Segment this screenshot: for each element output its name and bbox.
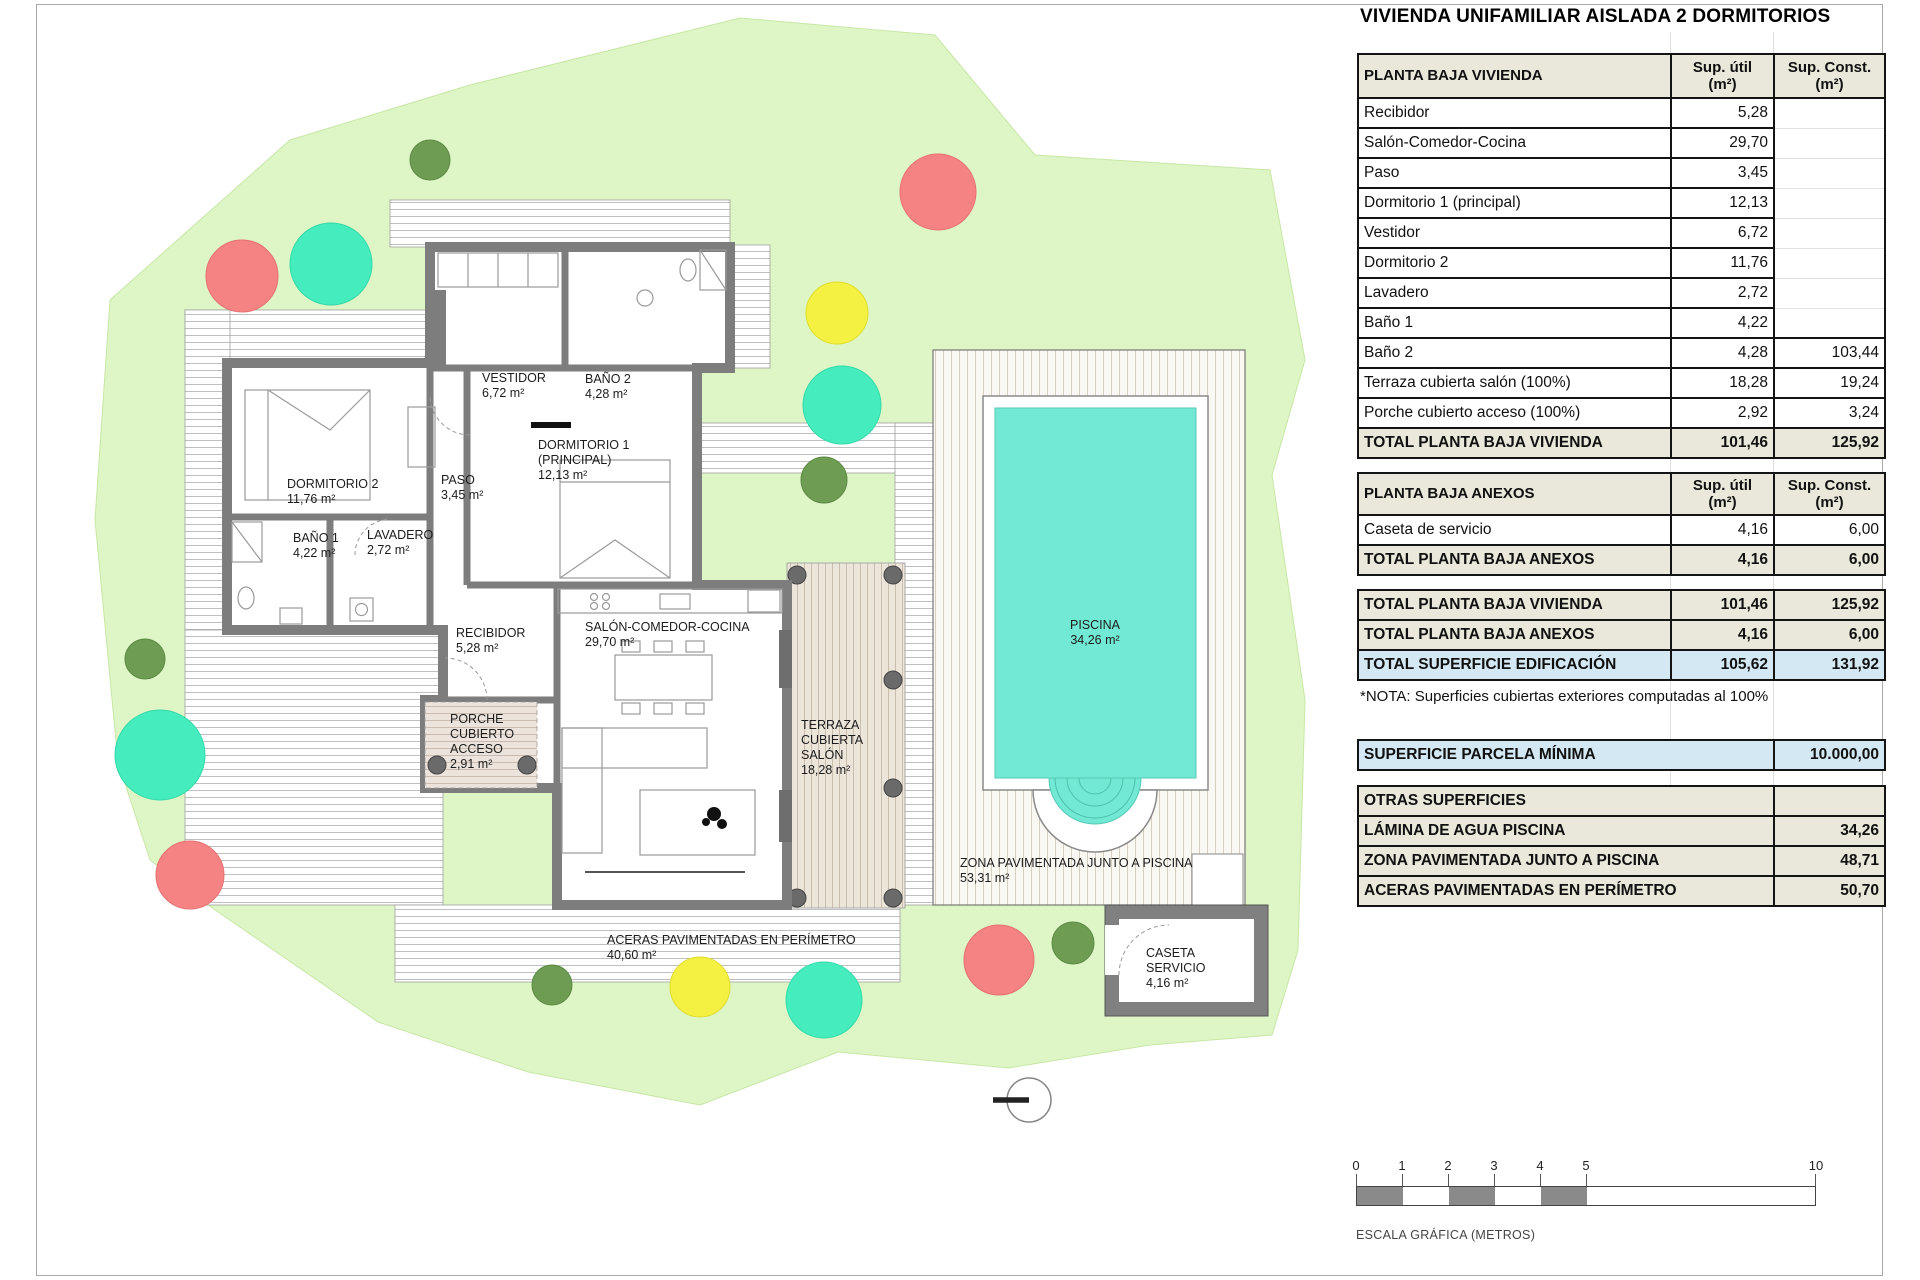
scale-tick-label: 0: [1352, 1158, 1359, 1173]
table-total-row: TOTAL PLANTA BAJA VIVIENDA 101,46 125,92: [1358, 428, 1885, 458]
benchmark-icon: [993, 1078, 1051, 1122]
table-parcela-minima: SUPERFICIE PARCELA MÍNIMA 10.000,00: [1357, 739, 1886, 771]
scale-tick-label: 10: [1809, 1158, 1823, 1173]
table-row: Baño 24,28103,44: [1358, 338, 1885, 368]
room-label-vestidor: VESTIDOR6,72 m²: [482, 371, 546, 401]
col-header-sup-util: Sup. útil(m²): [1671, 54, 1774, 98]
note-text: *NOTA: Superficies cubiertas exteriores …: [1360, 688, 1768, 705]
room-label-terraza: TERRAZACUBIERTA SALÓN18,28 m²: [801, 718, 863, 778]
label-caseta: CASETASERVICIO 4,16 m²: [1146, 946, 1206, 991]
table-row: LÁMINA DE AGUA PISCINA34,26: [1358, 816, 1885, 846]
room-label-paso: PASO3,45 m²: [441, 473, 483, 503]
room-label-dormitorio1: DORMITORIO 1(PRINCIPAL) 12,13 m²: [538, 438, 629, 483]
scale-bar-label: ESCALA GRÁFICA (METROS): [1356, 1228, 1535, 1242]
table-row: Recibidor5,28: [1358, 98, 1885, 128]
scale-tick-label: 2: [1444, 1158, 1451, 1173]
table-row: Porche cubierto acceso (100%)2,923,24: [1358, 398, 1885, 428]
table-row: ZONA PAVIMENTADA JUNTO A PISCINA48,71: [1358, 846, 1885, 876]
label-zona-pavimentada: ZONA PAVIMENTADA JUNTO A PISCINA53,31 m²: [960, 856, 1192, 886]
table-total-row: TOTAL SUPERFICIE EDIFICACIÓN 105,62 131,…: [1358, 650, 1885, 680]
col-header-sup-const: Sup. Const.(m²): [1774, 473, 1885, 515]
table-row: Salón-Comedor-Cocina29,70: [1358, 128, 1885, 158]
table-header-row: OTRAS SUPERFICIES: [1358, 786, 1885, 816]
table-row: Lavadero2,72: [1358, 278, 1885, 308]
room-label-lavadero: LAVADERO2,72 m²: [367, 528, 433, 558]
table-row: Baño 14,22: [1358, 308, 1885, 338]
table-row: Paso3,45: [1358, 158, 1885, 188]
room-label-bano1: BAÑO 14,22 m²: [293, 531, 339, 561]
drawing-sheet: DORMITORIO 211,76 m² BAÑO 14,22 m² LAVAD…: [0, 0, 1920, 1280]
table-row: SUPERFICIE PARCELA MÍNIMA 10.000,00: [1358, 740, 1885, 770]
room-label-salon: SALÓN-COMEDOR-COCINA29,70 m²: [585, 620, 750, 650]
table-row: ACERAS PAVIMENTADAS EN PERÍMETRO50,70: [1358, 876, 1885, 906]
label-piscina: PISCINA34,26 m²: [1035, 618, 1155, 648]
room-label-bano2: BAÑO 24,28 m²: [585, 372, 631, 402]
scale-tick-label: 4: [1536, 1158, 1543, 1173]
room-label-porche: PORCHECUBIERTO ACCESO2,91 m²: [450, 712, 514, 772]
scale-tick-label: 1: [1398, 1158, 1405, 1173]
table-total-row: TOTAL PLANTA BAJA ANEXOS 4,16 6,00: [1358, 620, 1885, 650]
table-otras-superficies: OTRAS SUPERFICIES LÁMINA DE AGUA PISCINA…: [1357, 785, 1886, 907]
room-label-recibidor: RECIBIDOR5,28 m²: [456, 626, 525, 656]
table-row: Terraza cubierta salón (100%)18,2819,24: [1358, 368, 1885, 398]
table-planta-baja-vivienda: PLANTA BAJA VIVIENDA Sup. útil(m²) Sup. …: [1357, 53, 1886, 459]
table-row: Dormitorio 1 (principal)12,13: [1358, 188, 1885, 218]
table-totales: TOTAL PLANTA BAJA VIVIENDA 101,46 125,92…: [1357, 589, 1886, 681]
table-row: Dormitorio 211,76: [1358, 248, 1885, 278]
scale-tick-label: 5: [1582, 1158, 1589, 1173]
scale-tick-label: 3: [1490, 1158, 1497, 1173]
table-total-row: TOTAL PLANTA BAJA VIVIENDA 101,46 125,92: [1358, 590, 1885, 620]
table-header: PLANTA BAJA ANEXOS: [1358, 473, 1671, 515]
table-total-row: TOTAL PLANTA BAJA ANEXOS 4,16 6,00: [1358, 545, 1885, 575]
room-label-dormitorio2: DORMITORIO 211,76 m²: [287, 477, 378, 507]
scale-bar: [1356, 1186, 1816, 1206]
table-header: PLANTA BAJA VIVIENDA: [1358, 54, 1671, 98]
table-row: Vestidor6,72: [1358, 218, 1885, 248]
col-header-sup-const: Sup. Const.(m²): [1774, 54, 1885, 98]
table-planta-baja-anexos: PLANTA BAJA ANEXOS Sup. útil(m²) Sup. Co…: [1357, 472, 1886, 576]
drawing-title: VIVIENDA UNIFAMILIAR AISLADA 2 DORMITORI…: [1360, 6, 1830, 28]
table-row: Caseta de servicio4,166,00: [1358, 515, 1885, 545]
col-header-sup-util: Sup. útil(m²): [1671, 473, 1774, 515]
label-aceras: ACERAS PAVIMENTADAS EN PERÍMETRO40,60 m²: [607, 933, 856, 963]
